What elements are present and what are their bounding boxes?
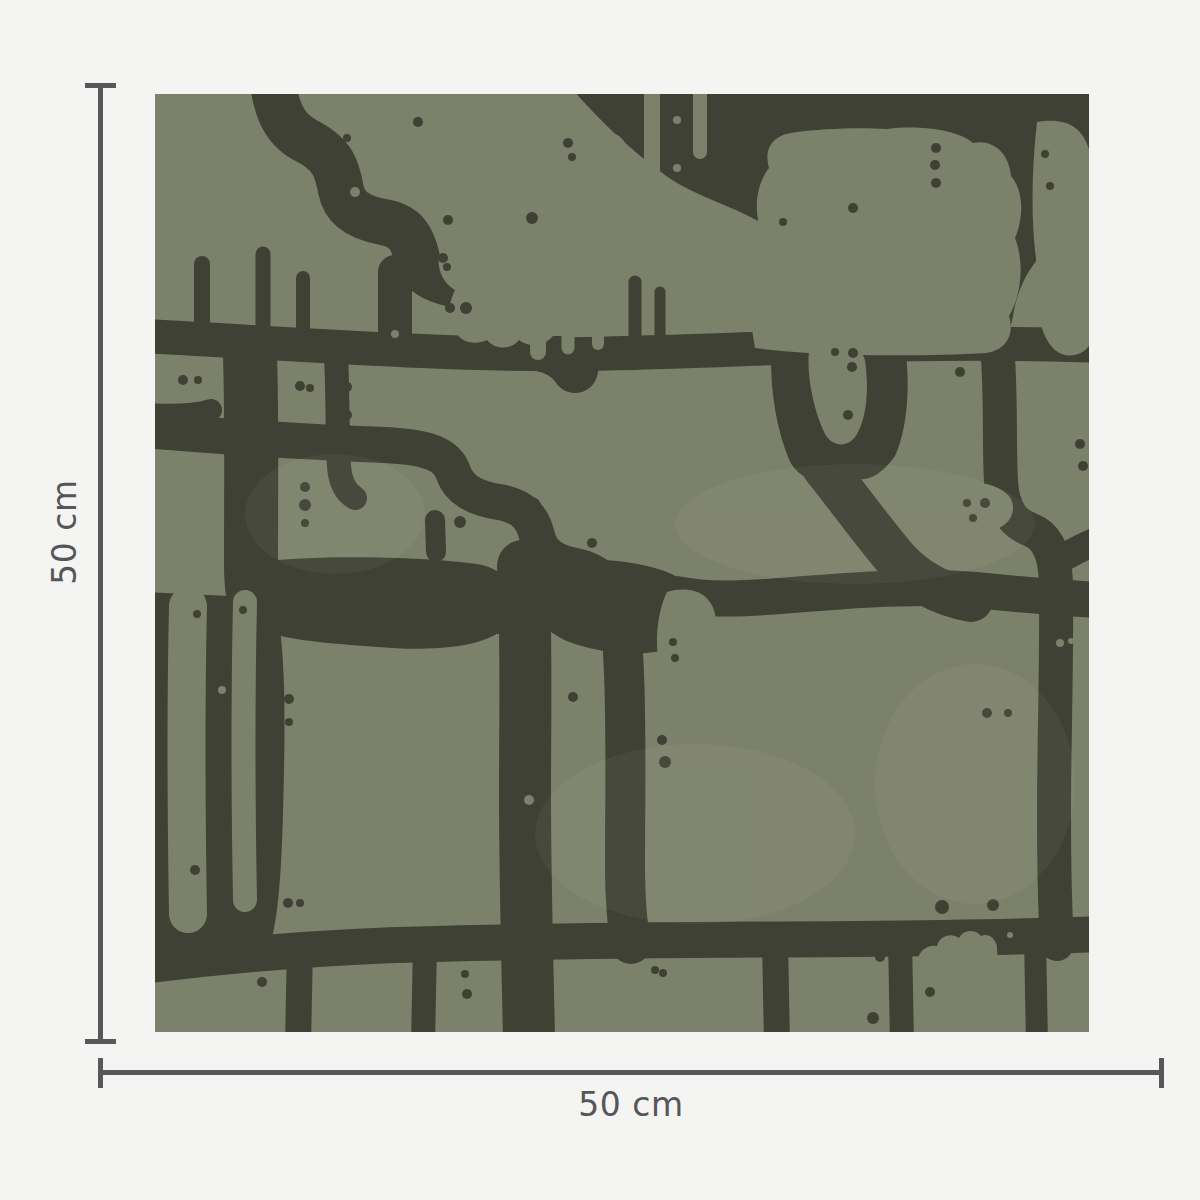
height-dimension-label: 50 cm	[45, 479, 84, 584]
height-dimension-cap-top	[85, 83, 116, 88]
width-dimension-cap-right	[1159, 1058, 1164, 1088]
width-dimension-cap-left	[98, 1058, 103, 1088]
wallpaper-swatch	[155, 94, 1089, 1032]
pattern-artwork	[155, 94, 1089, 1032]
height-dimension-line	[98, 85, 103, 1042]
height-dimension-cap-bottom	[85, 1039, 116, 1044]
product-dimension-diagram: 50 cm 50 cm	[0, 0, 1200, 1200]
width-dimension-line	[98, 1070, 1164, 1075]
width-dimension-label: 50 cm	[578, 1085, 683, 1124]
